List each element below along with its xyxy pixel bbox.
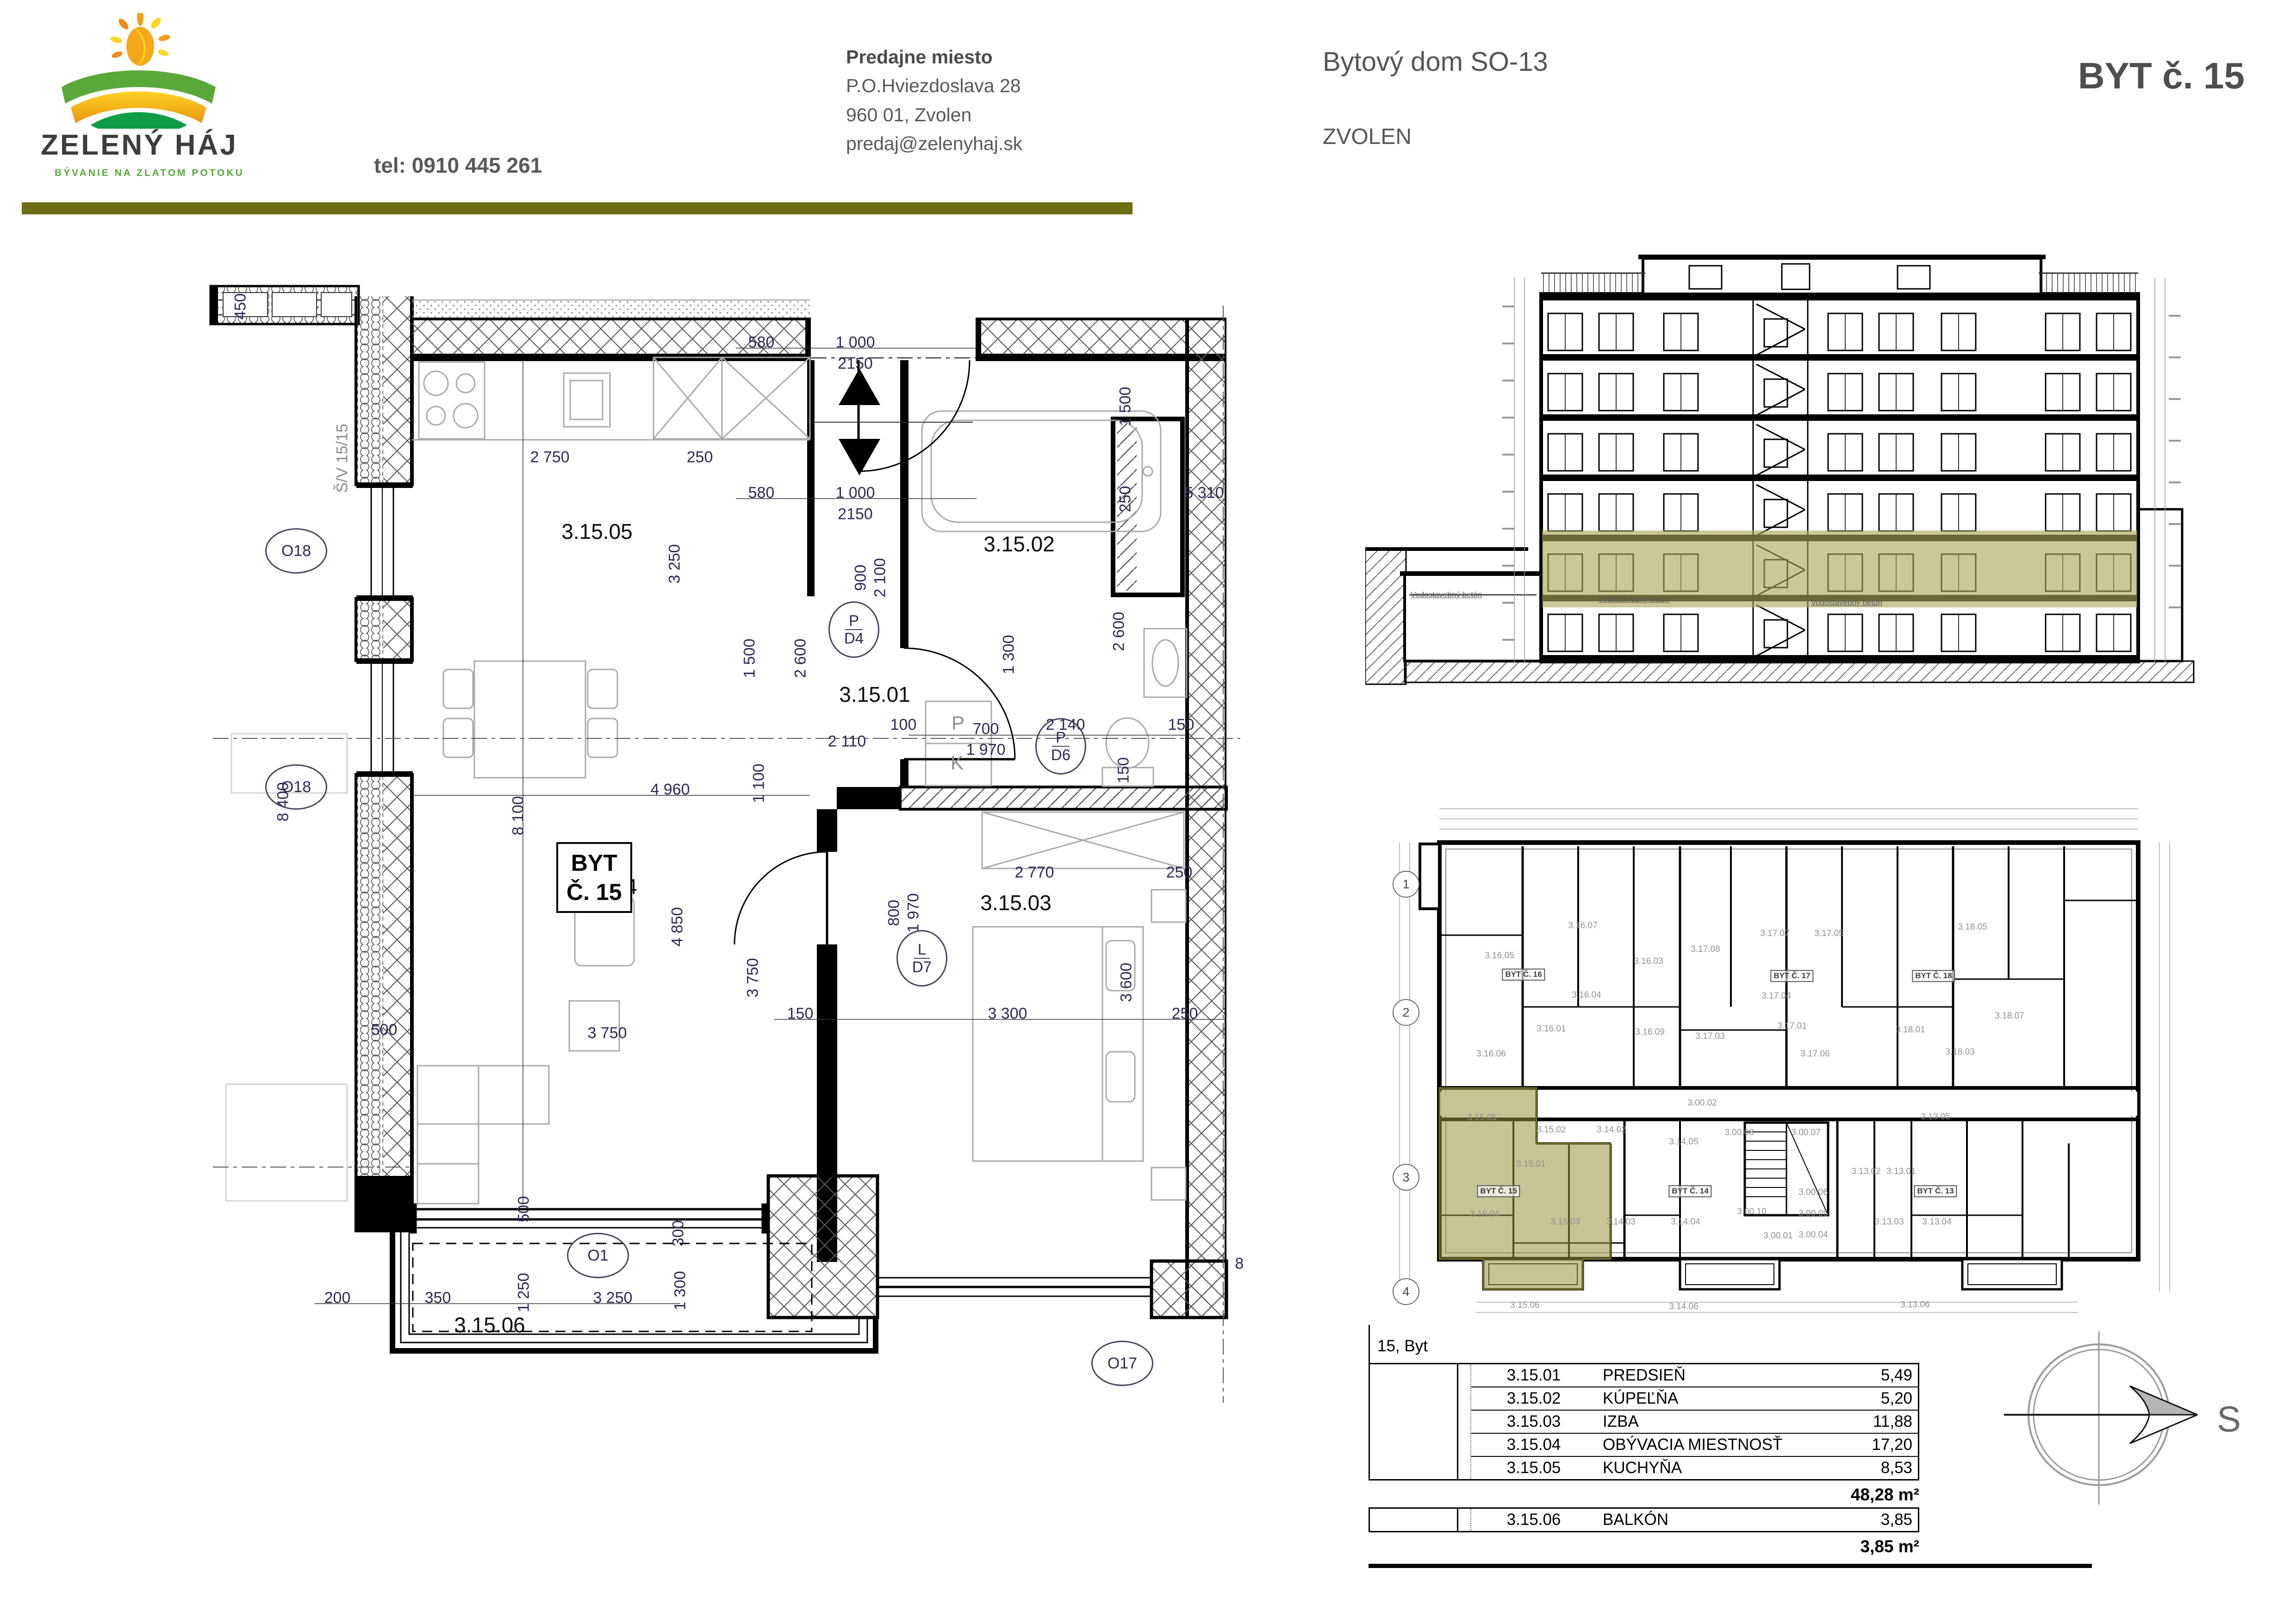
plan-window-layer: O18O18O1O17 — [204, 278, 1250, 1435]
compass — [1990, 1328, 2249, 1508]
unit-number-box: BYT Č. 15 — [556, 842, 632, 913]
section-note: Vodostavebný betón — [1811, 598, 1882, 607]
axis-marker: 3 — [1393, 1164, 1419, 1191]
sales-office-block: Predajne miesto P.O.Hviezdoslava 28 960 … — [846, 43, 1022, 158]
unit-box-line2: Č. 15 — [566, 878, 622, 907]
compass-north-label: S — [2217, 1398, 2241, 1440]
area-table-main-box: 3.15.01PREDSIEŇ5,493.15.02KÚPEĽŇA5,203.1… — [1369, 1363, 1919, 1480]
compass-rose-icon — [1990, 1328, 2249, 1508]
balcony-left-cell — [1370, 1509, 1458, 1531]
brand-phone: tel: 0910 445 261 — [374, 153, 542, 178]
area-table-dotted-column — [1458, 1364, 1471, 1479]
brand-logo — [50, 13, 230, 129]
area-table-row: 3.15.03IZBA11,88 — [1471, 1411, 1918, 1434]
building-section: Vodostavebný betónVodostavebný betónVodo… — [1365, 250, 2221, 704]
area-table: 15, Byt 3.15.01PREDSIEŇ5,493.15.02KÚPEĽŇ… — [1369, 1325, 2092, 1568]
area-table-left-cell — [1370, 1364, 1458, 1479]
row-name: KÚPEĽŇA — [1596, 1387, 1820, 1410]
building-city: ZVOLEN — [1323, 124, 1412, 150]
window-tag: O18 — [265, 764, 327, 810]
area-table-row: 3.15.04OBÝVACIA MIESTNOSŤ17,20 — [1471, 1434, 1918, 1457]
window-tag: O1 — [567, 1233, 629, 1278]
row-code: 3.15.01 — [1471, 1364, 1596, 1387]
row-name: KUCHYŇA — [1596, 1457, 1820, 1479]
balcony-rows: 3.15.06BALKÓN3,85 — [1471, 1509, 1918, 1531]
apartment-floorplan: 450Š/V 15/155801 00021505801 00021501 50… — [204, 278, 1250, 1435]
row-code: 3.15.04 — [1471, 1434, 1596, 1456]
window-tag: O17 — [1091, 1341, 1153, 1386]
balcony-total: 3,85 m² — [1369, 1532, 1921, 1559]
overview-axis-layer: 1234 — [1384, 799, 2175, 1322]
row-name: OBÝVACIA MIESTNOSŤ — [1596, 1434, 1820, 1456]
office-title: Predajne miesto — [846, 43, 1022, 71]
row-code: 3.15.05 — [1471, 1457, 1596, 1479]
area-table-balcony-box: 3.15.06BALKÓN3,85 — [1369, 1507, 1919, 1532]
section-notes-layer: Vodostavebný betónVodostavebný betónVodo… — [1365, 250, 2221, 704]
row-area: 17,20 — [1820, 1434, 1918, 1456]
office-address-1: P.O.Hviezdoslava 28 — [846, 71, 1022, 100]
row-area: 3,85 — [1820, 1509, 1918, 1531]
row-code: 3.15.02 — [1471, 1387, 1596, 1410]
axis-marker: 2 — [1393, 999, 1419, 1026]
row-area: 5,49 — [1820, 1364, 1918, 1387]
building-title: Bytový dom SO-13 — [1323, 46, 1548, 77]
row-area: 5,20 — [1820, 1387, 1918, 1410]
brand-name: ZELENÝ HÁJ — [41, 129, 300, 162]
row-code: 3.15.06 — [1471, 1509, 1596, 1531]
area-table-row: 3.15.06BALKÓN3,85 — [1471, 1509, 1918, 1531]
area-table-row: 3.15.01PREDSIEŇ5,49 — [1471, 1364, 1918, 1387]
row-name: BALKÓN — [1596, 1509, 1820, 1531]
office-email: predaj@zelenyhaj.sk — [846, 129, 1022, 158]
unit-title: BYT č. 15 — [1995, 55, 2245, 97]
unit-box-line1: BYT — [566, 849, 622, 878]
brand-tagline: BÝVANIE NA ZLATOM POTOKU — [55, 168, 244, 179]
area-table-row: 3.15.02KÚPEĽŇA5,20 — [1471, 1387, 1918, 1411]
row-area: 8,53 — [1820, 1457, 1918, 1479]
row-name: PREDSIEŇ — [1596, 1364, 1820, 1387]
area-table-title: 15, Byt — [1369, 1325, 2092, 1363]
axis-marker: 4 — [1393, 1278, 1419, 1305]
header-accent-bar — [22, 202, 1132, 214]
section-note: Vodostavebný betón — [1411, 590, 1482, 600]
section-note: Vodostavebný betón — [1598, 595, 1669, 604]
row-code: 3.15.03 — [1471, 1411, 1596, 1433]
page: ZELENÝ HÁJ BÝVANIE NA ZLATOM POTOKU tel:… — [0, 0, 2296, 1624]
table-bottom-rule — [1369, 1564, 2092, 1568]
sun-hills-logo-icon — [50, 13, 230, 129]
area-total: 48,28 m² — [1369, 1480, 1921, 1507]
window-tag: O18 — [265, 528, 327, 574]
balcony-dotted-column — [1458, 1509, 1471, 1531]
floor-overview-plan: 3.16.053.16.073.16.033.17.083.17.073.17.… — [1384, 799, 2175, 1322]
row-name: IZBA — [1596, 1411, 1820, 1433]
area-table-rows: 3.15.01PREDSIEŇ5,493.15.02KÚPEĽŇA5,203.1… — [1471, 1364, 1918, 1479]
area-table-row: 3.15.05KUCHYŇA8,53 — [1471, 1457, 1918, 1479]
axis-marker: 1 — [1393, 871, 1419, 898]
row-area: 11,88 — [1820, 1411, 1918, 1433]
office-address-2: 960 01, Zvolen — [846, 100, 1022, 129]
